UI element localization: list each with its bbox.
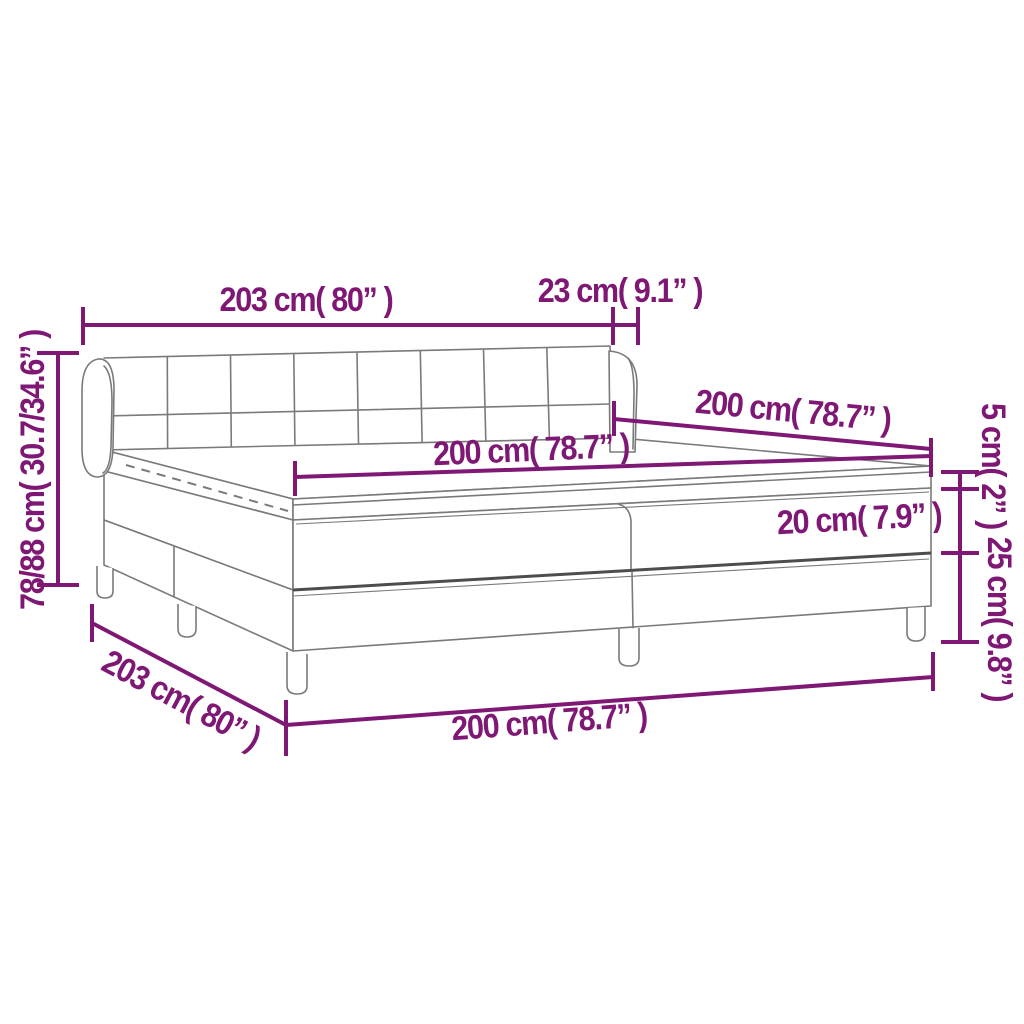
dim-label-wing-depth: 23 cm( 9.1” ) bbox=[538, 274, 702, 308]
dim-label-topper-height: 5 cm( 2” ) bbox=[976, 403, 1010, 529]
dim-label-base-height: 25 cm( 9.8” ) bbox=[982, 537, 1016, 701]
dim-label-mattress-height: 20 cm( 7.9” ) bbox=[776, 498, 942, 541]
dim-label-total-height: 78/88 cm( 30.7/34.6” ) bbox=[16, 330, 50, 610]
bed-dimension-diagram: 203 cm( 80” ) 23 cm( 9.1” ) 78/88 cm( 30… bbox=[0, 0, 1024, 1024]
dim-label-mattress-width: 200 cm( 78.7” ) bbox=[432, 429, 629, 472]
dim-label-headboard-width: 203 cm( 80” ) bbox=[220, 283, 393, 317]
